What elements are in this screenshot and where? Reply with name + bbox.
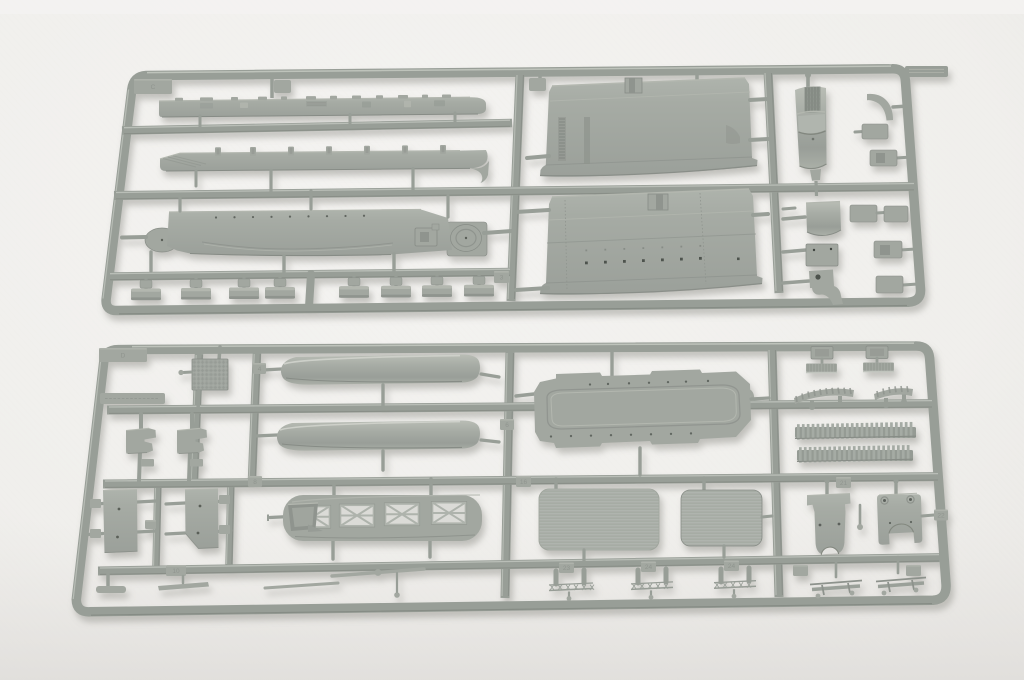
svg-text:21: 21 bbox=[840, 480, 848, 487]
svg-text:22: 22 bbox=[937, 512, 945, 519]
svg-text:23: 23 bbox=[563, 565, 571, 572]
svg-text:4: 4 bbox=[258, 366, 262, 373]
svg-text:C: C bbox=[151, 84, 156, 91]
svg-text:16: 16 bbox=[520, 479, 528, 486]
svg-text:24: 24 bbox=[728, 563, 736, 570]
svg-text:3: 3 bbox=[500, 274, 504, 281]
svg-text:D: D bbox=[121, 352, 126, 359]
svg-text:6: 6 bbox=[505, 422, 509, 429]
svg-text:10: 10 bbox=[172, 568, 180, 575]
svg-text:8: 8 bbox=[253, 479, 257, 486]
svg-text:24: 24 bbox=[645, 564, 653, 571]
